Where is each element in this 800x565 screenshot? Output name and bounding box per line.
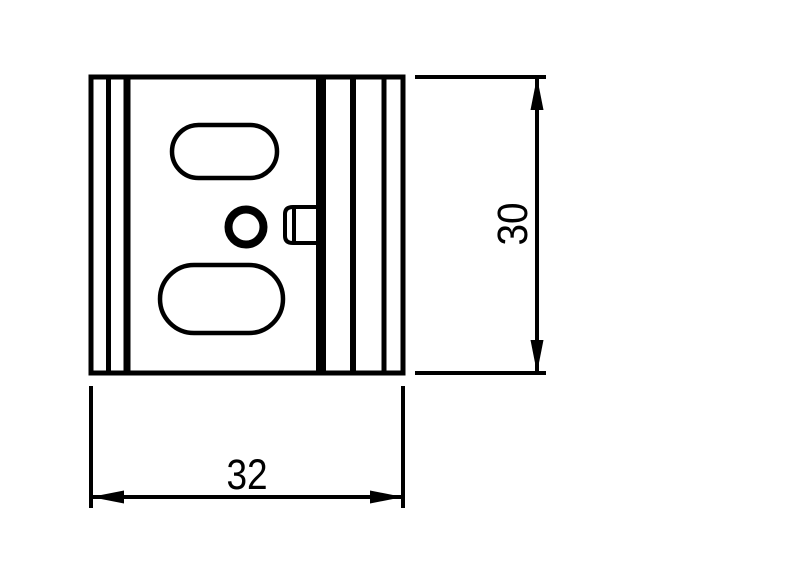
part-front-view: [91, 75, 403, 375]
height-dimension-value: 30: [488, 202, 536, 245]
height-dimension: 30: [415, 77, 546, 373]
drawing-canvas: 32 30: [0, 0, 800, 565]
technical-drawing: 32 30: [0, 0, 800, 565]
part-outline: [91, 77, 403, 373]
width-arrow-right: [370, 491, 403, 504]
lower-obround-slot: [160, 265, 283, 333]
height-arrow-top: [531, 77, 544, 110]
width-dimension-value: 32: [226, 451, 267, 498]
height-arrow-bottom: [531, 340, 544, 373]
width-dimension: 32: [91, 386, 403, 508]
upper-obround-slot: [172, 125, 277, 178]
width-arrow-left: [91, 491, 124, 504]
center-hole: [229, 210, 264, 245]
